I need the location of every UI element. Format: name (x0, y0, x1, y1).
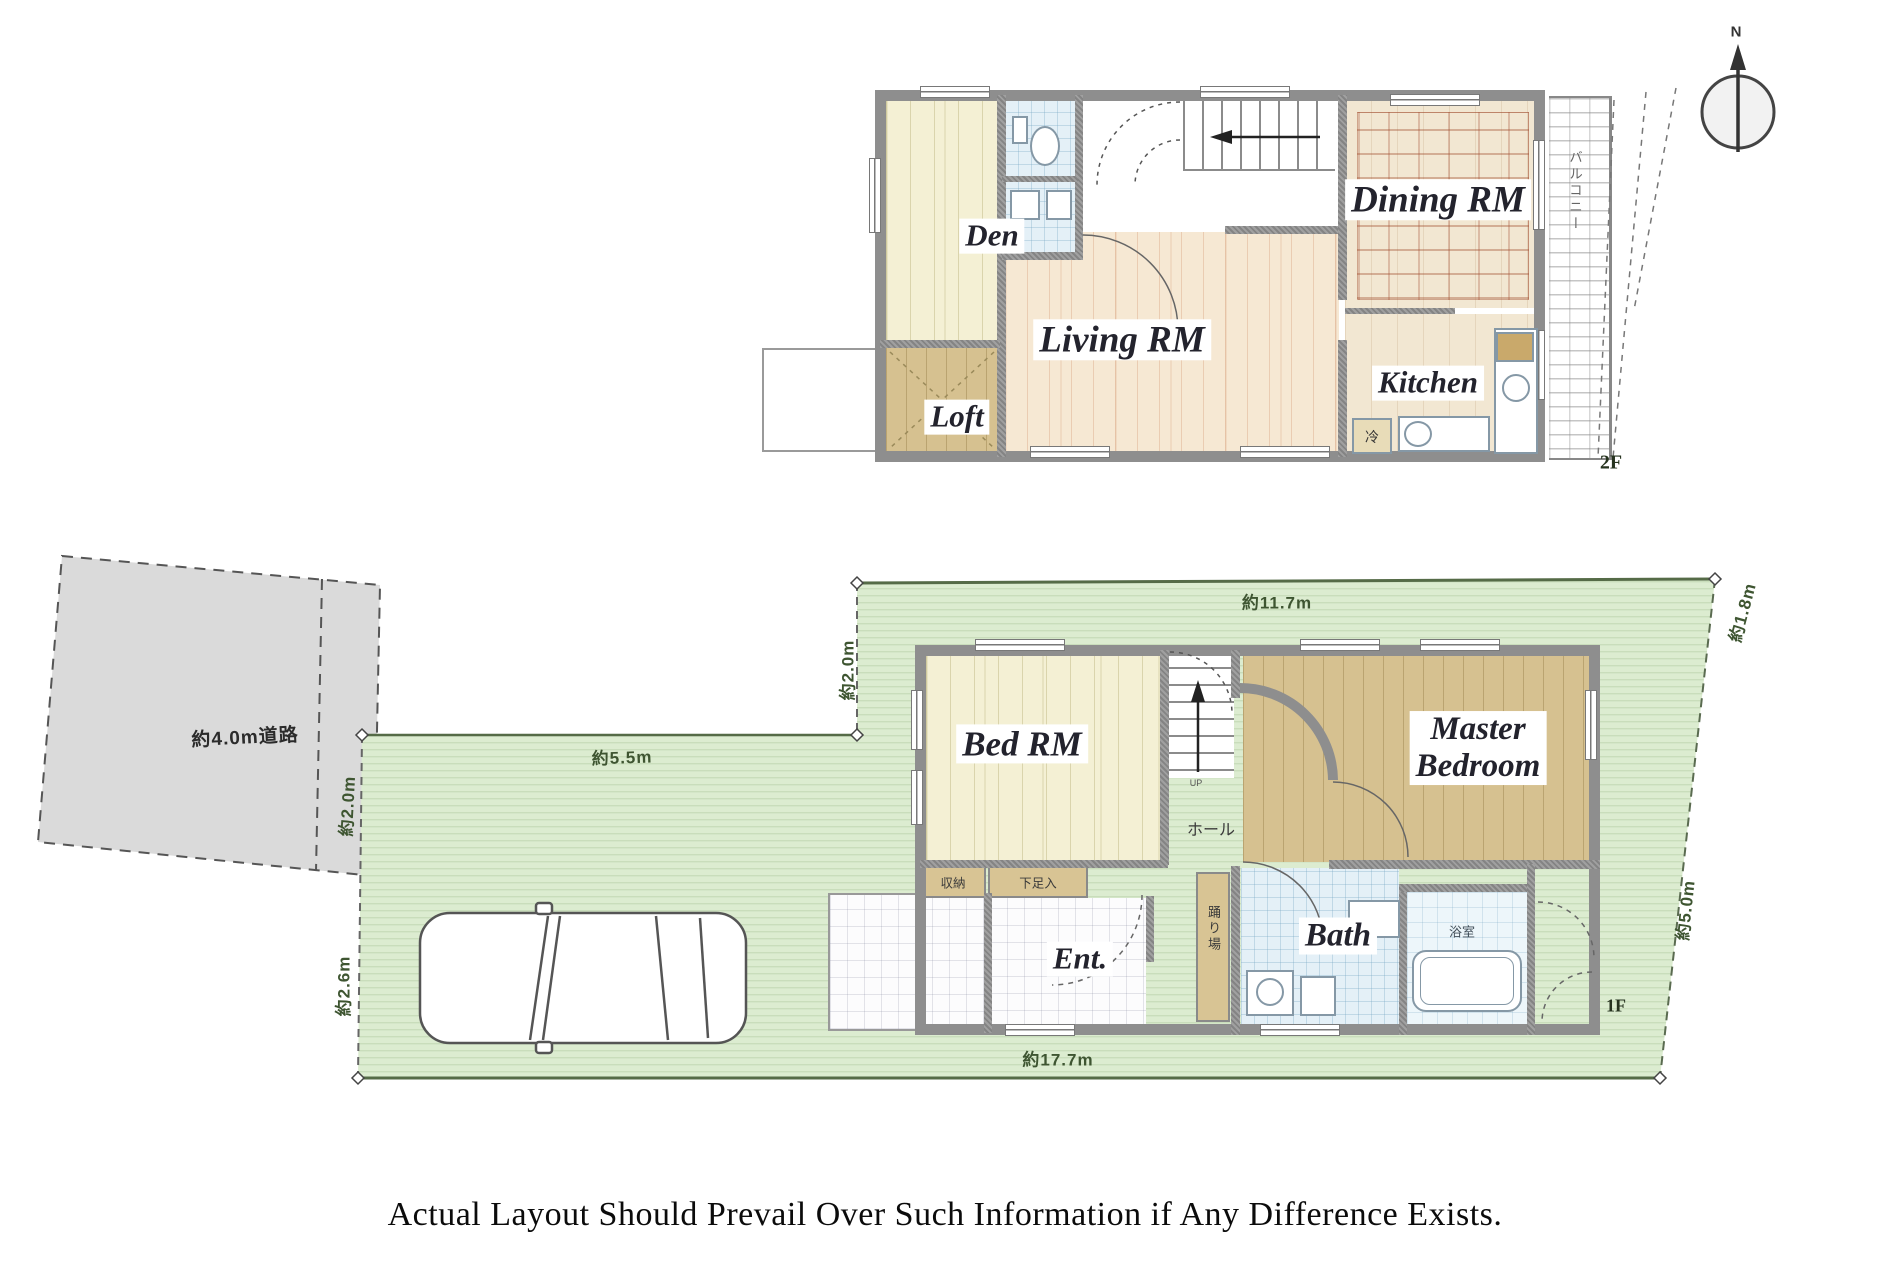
window (869, 158, 881, 233)
window (1005, 1024, 1075, 1036)
window (1390, 94, 1480, 106)
dim-road-strip: 約2.0m (332, 775, 360, 837)
window (911, 770, 923, 825)
window (1585, 690, 1597, 760)
toilet-2f (1030, 126, 1060, 166)
den-label: Den (959, 219, 1024, 254)
dining-label: Dining RM (1345, 179, 1531, 220)
wall-dining-kitchen (1345, 308, 1455, 314)
wall-den-loft (880, 340, 1000, 348)
wall-washroom-left (1231, 866, 1240, 1035)
toilet-tank-2f (1012, 116, 1028, 144)
wall-bathroom-right (1527, 864, 1535, 1035)
window (911, 690, 923, 750)
toilet-1f (1300, 976, 1336, 1016)
lot-edge-right (1660, 579, 1715, 1078)
balcony-label: バルコニー (1564, 150, 1584, 233)
window (1533, 140, 1545, 230)
window (1300, 639, 1380, 651)
compass-north-label: N (1731, 24, 1742, 41)
window (1200, 86, 1290, 98)
road-inner-boundary (316, 579, 322, 871)
wall-ent-right (1146, 896, 1154, 962)
dim-top: 約11.7m (1242, 589, 1312, 614)
master-label-line2: Bedroom (1416, 748, 1541, 784)
window (1030, 446, 1110, 458)
kitchen-stove (1496, 332, 1534, 362)
wall-sanitary-divider-2f (1002, 176, 1078, 182)
bathroom-jp-label: 浴室 (1449, 922, 1475, 941)
road-label: 約4.0m道路 (191, 720, 300, 753)
shoe-cabinet-label: 下足入 (1019, 873, 1057, 892)
entrance-label: Ent. (1047, 942, 1113, 977)
window (920, 86, 990, 98)
wall-stair-landing-2f (1225, 226, 1338, 234)
fridge-label: 冷 (1365, 429, 1379, 445)
living-label: Living RM (1033, 319, 1211, 360)
lot-edge-top (857, 579, 1715, 583)
car (420, 903, 746, 1053)
storage-label: 収納 (940, 873, 965, 892)
window (1240, 446, 1330, 458)
wall-master-bottom (1329, 860, 1600, 869)
dim-left-lower: 約2.6m (330, 956, 355, 1017)
window (975, 639, 1065, 651)
washing-machine-drum (1256, 978, 1284, 1006)
dim-left-upper: 約2.0m (834, 640, 859, 701)
floor-plan-page: 冷 (0, 0, 1890, 1285)
bathtub-inner (1420, 957, 1514, 1005)
master-label-line1: Master (1430, 711, 1525, 747)
wall-bathroom-top (1399, 884, 1535, 892)
cabinet-2f (1046, 190, 1072, 220)
wall-living-kitchen-lower (1338, 340, 1347, 457)
floor1-tag: 1F (1606, 996, 1626, 1017)
hall-label: ホール (1187, 816, 1235, 840)
washbasin-2f (1010, 190, 1040, 220)
wall-washroom-bathroom (1399, 892, 1407, 1035)
kitchen-island-sink (1404, 421, 1432, 447)
master-label: Master Bedroom (1410, 711, 1547, 785)
dim-right-upper: 約1.8m (1721, 579, 1761, 644)
floor2-tag: 2F (1600, 452, 1622, 475)
kitchen-sink (1502, 374, 1530, 402)
fridge: 冷 (1352, 418, 1392, 454)
window (1420, 639, 1500, 651)
wall-den-right (997, 95, 1006, 457)
bay-window-2f (762, 348, 884, 452)
landing-label: 踊り場 (1204, 905, 1223, 953)
kitchen-label: Kitchen (1372, 366, 1484, 401)
stairs-up-label: UP (1190, 778, 1203, 788)
dim-right-lower: 約5.0m (1668, 878, 1699, 941)
road-parcel (38, 556, 380, 876)
compass-icon (1702, 44, 1774, 152)
bath-label: Bath (1299, 918, 1377, 955)
loft-label: Loft (924, 400, 989, 435)
bed-label: Bed RM (956, 724, 1088, 763)
wall-bed-bottom (920, 860, 1168, 868)
wall-ent-left (984, 893, 992, 1033)
wall-stairs-right (1231, 650, 1240, 698)
wall-bed-stairs (1160, 650, 1169, 865)
caption: Actual Layout Should Prevail Over Such I… (0, 1196, 1890, 1234)
window (1260, 1024, 1340, 1036)
dim-bottom: 約17.7m (1022, 1046, 1093, 1071)
dim-driveway: 約5.5m (591, 742, 653, 769)
